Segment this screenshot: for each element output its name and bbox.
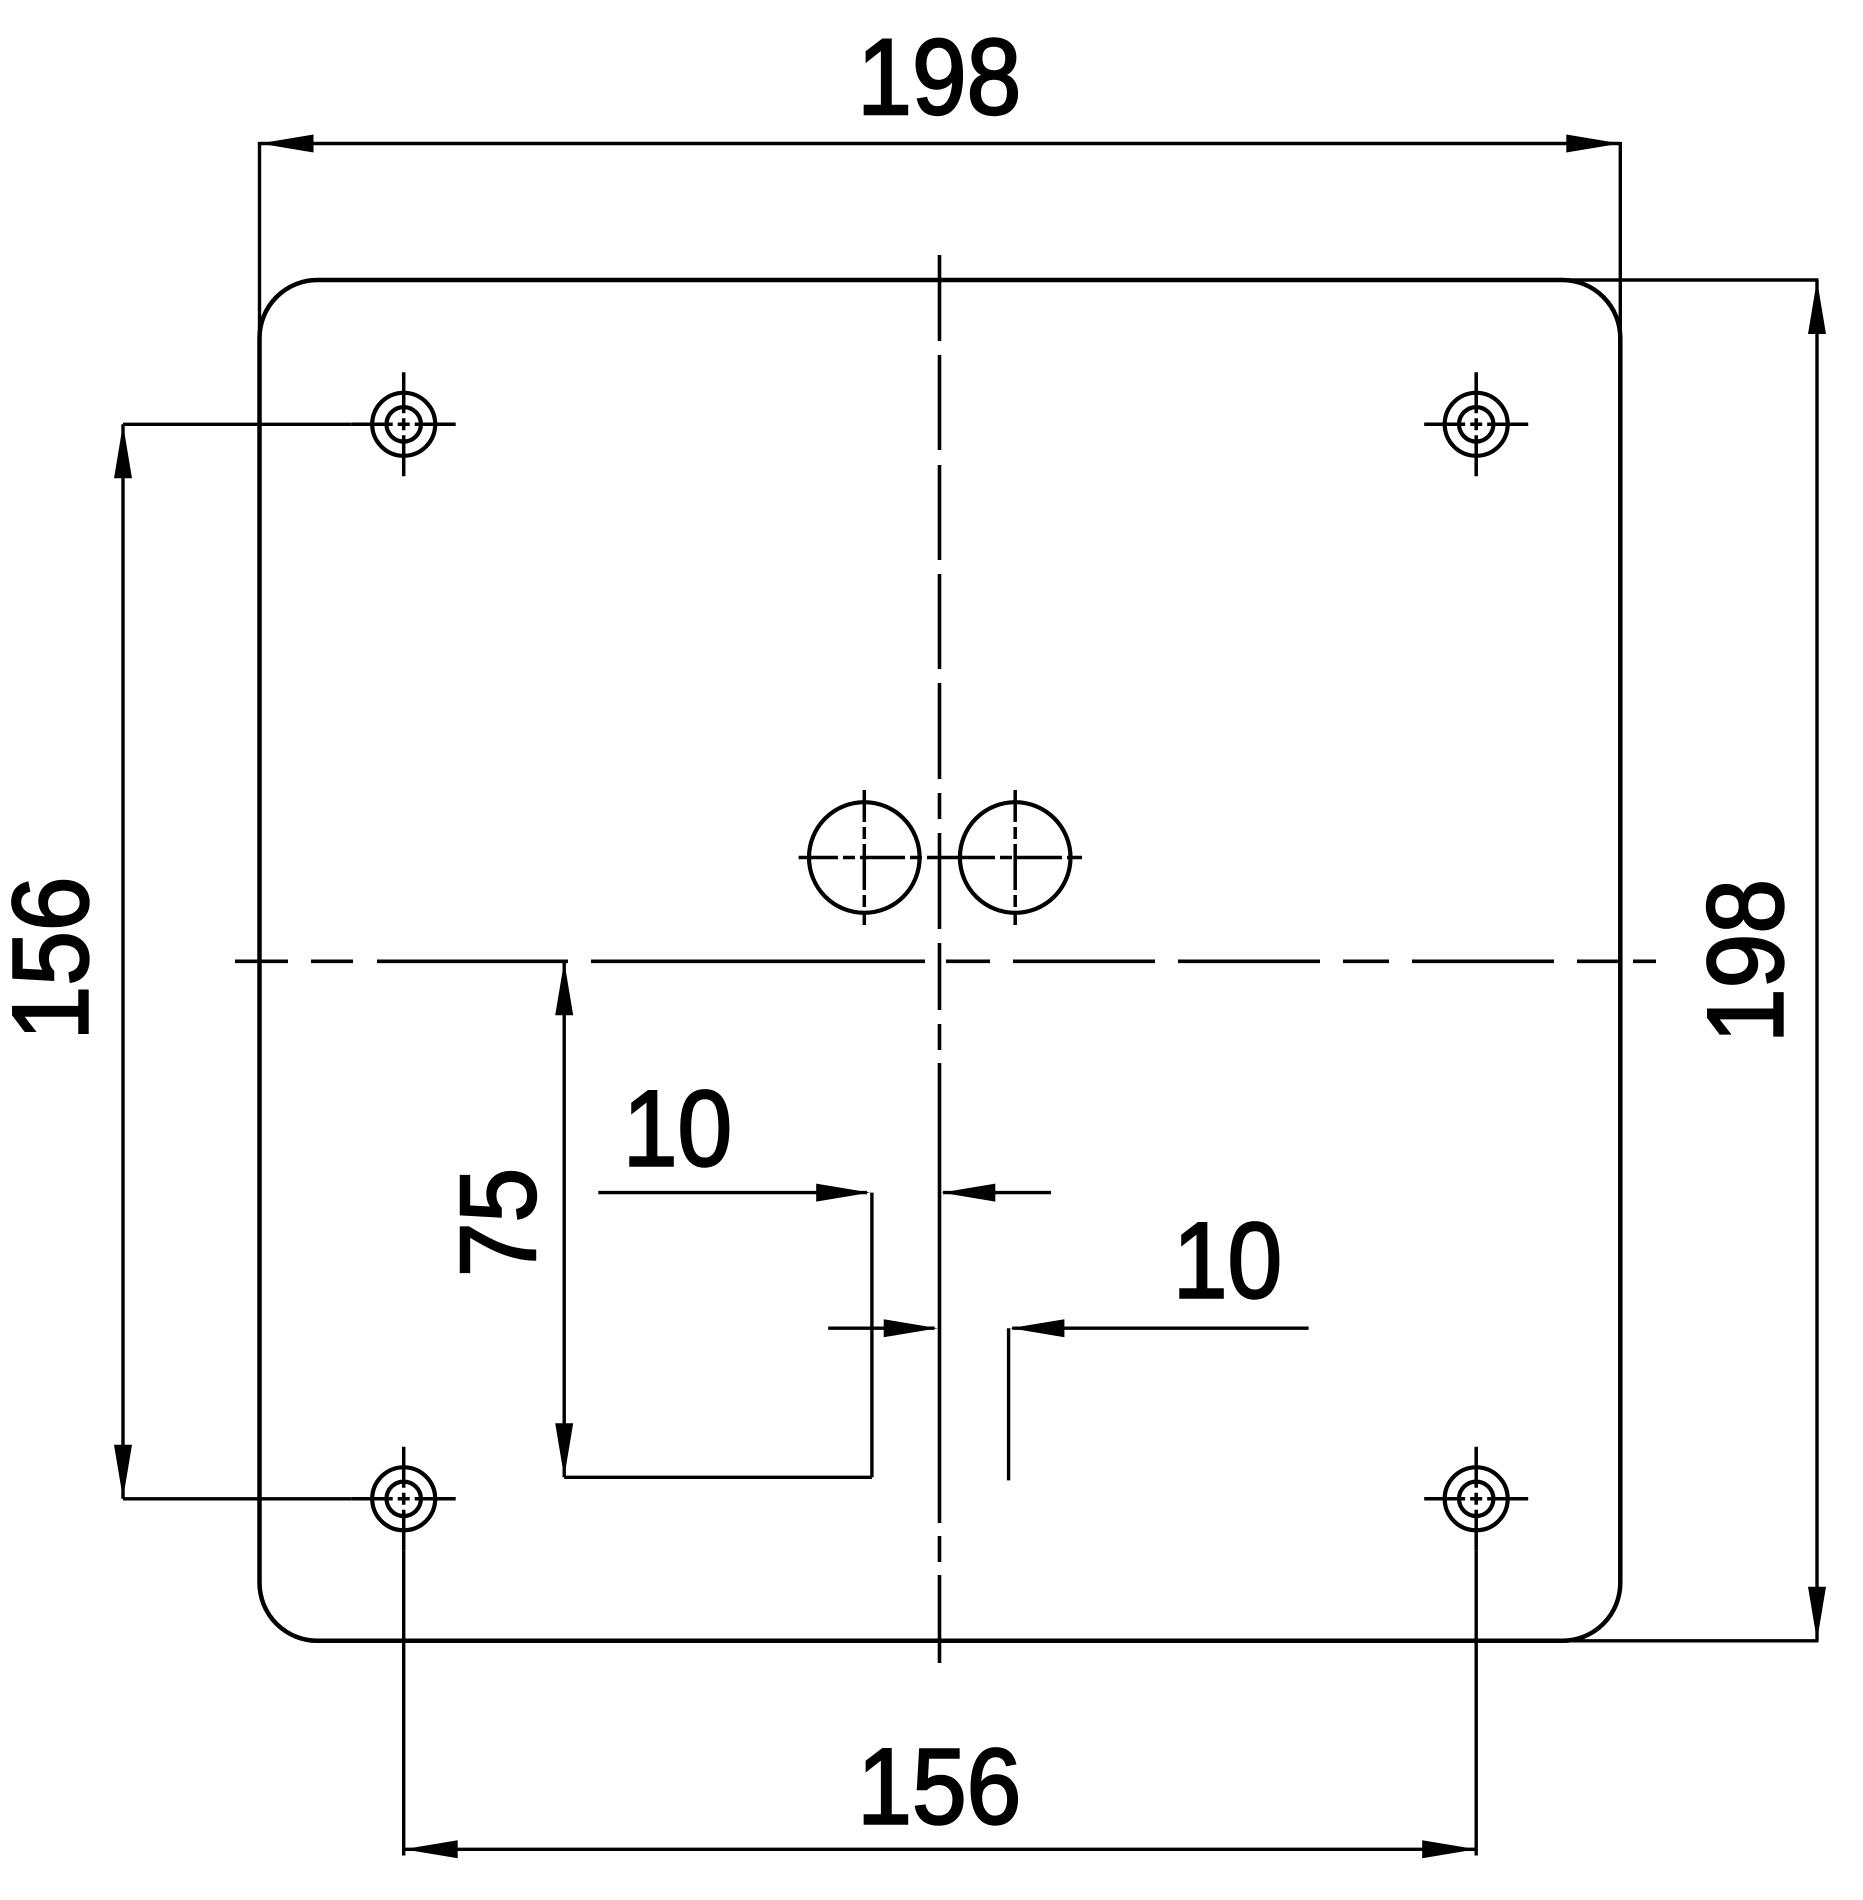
- svg-text:198: 198: [1685, 879, 1805, 1043]
- svg-text:10: 10: [1173, 1200, 1282, 1320]
- svg-text:156: 156: [857, 1726, 1021, 1846]
- svg-text:75: 75: [438, 1168, 558, 1277]
- svg-text:156: 156: [0, 876, 111, 1040]
- svg-text:198: 198: [857, 17, 1021, 137]
- svg-text:10: 10: [623, 1068, 732, 1188]
